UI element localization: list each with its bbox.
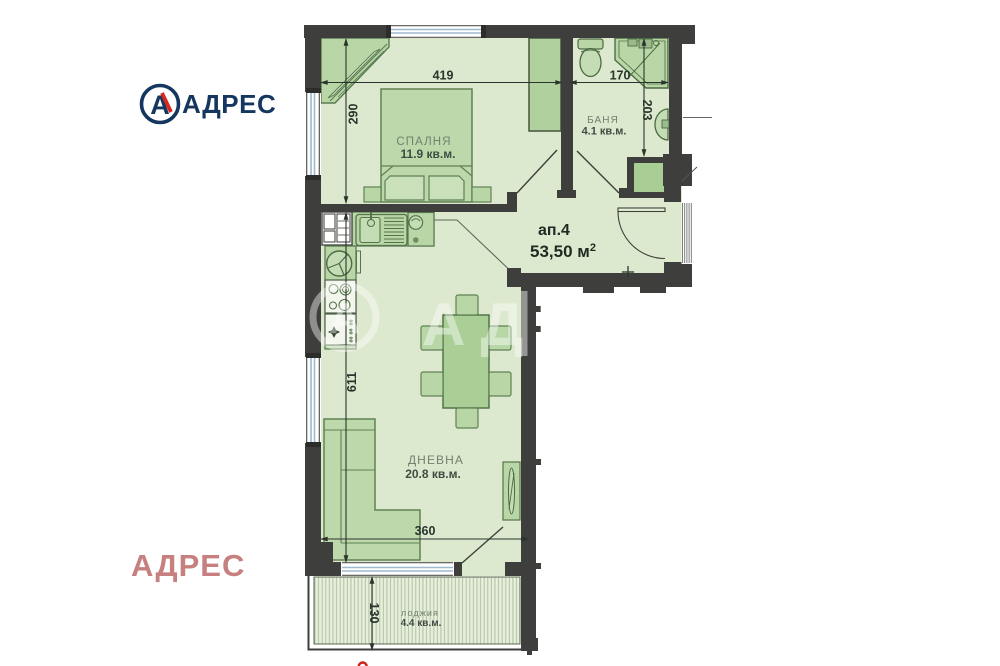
svg-text:4.4 кв.м.: 4.4 кв.м. (401, 618, 442, 629)
svg-text:А: А (329, 294, 361, 343)
svg-text:20.8 кв.м.: 20.8 кв.м. (405, 467, 461, 481)
svg-text:290: 290 (347, 104, 361, 125)
svg-text:203: 203 (640, 100, 654, 121)
svg-text:АДРЕС: АДРЕС (182, 89, 276, 119)
svg-text:ДНЕВНА: ДНЕВНА (408, 453, 464, 467)
svg-text:4.1 кв.м.: 4.1 кв.м. (582, 126, 627, 138)
svg-text:ап.4: ап.4 (538, 222, 570, 239)
svg-text:11.9 кв.м.: 11.9 кв.м. (401, 147, 456, 161)
svg-text:АДРЕС: АДРЕС (422, 291, 699, 358)
svg-text:АДРЕС: АДРЕС (131, 548, 245, 583)
svg-text:130: 130 (367, 603, 381, 624)
svg-text:БАНЯ: БАНЯ (587, 115, 619, 126)
svg-text:170: 170 (610, 69, 631, 83)
svg-text:419: 419 (433, 69, 454, 83)
svg-text:лоджия: лоджия (401, 608, 439, 618)
svg-text:611: 611 (345, 372, 359, 392)
svg-text:360: 360 (415, 524, 436, 538)
svg-text:53,50 м2: 53,50 м2 (530, 242, 596, 261)
